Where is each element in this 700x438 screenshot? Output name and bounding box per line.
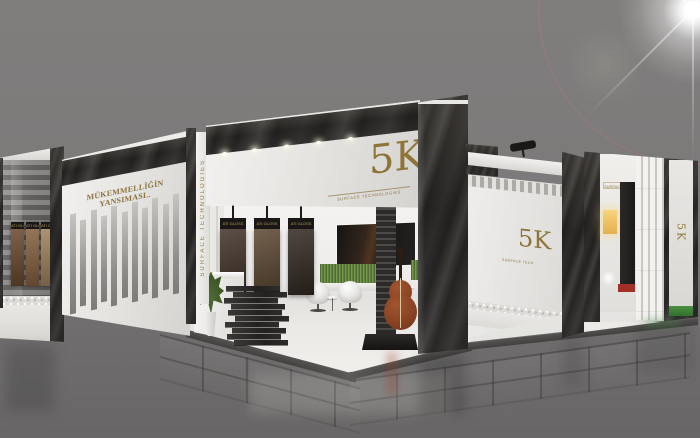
stack-slab (227, 334, 281, 339)
stack-slab (235, 316, 289, 321)
rug-reflection (645, 318, 680, 328)
wall-slat (111, 205, 117, 306)
cello (378, 250, 424, 350)
ceiling-light (284, 144, 289, 148)
stack-slab (226, 286, 280, 291)
marble-pilaster (50, 146, 64, 342)
panel-rod (232, 204, 234, 218)
case-card-label: ATI GLOSS (11, 222, 24, 229)
stack-slab (231, 304, 285, 309)
stack-slab (233, 292, 287, 297)
wall-slat (80, 219, 86, 306)
pendant-lamp (603, 210, 617, 234)
marble-column (584, 150, 600, 322)
corner-marble-column (186, 128, 196, 324)
marble-column (562, 148, 584, 338)
exhibition-stand-render: ATI GLOSSATI GLOSSATI GLOSS 5K ATI GLOSS… (0, 0, 700, 438)
lens-flare-burst (598, 0, 700, 105)
tower-highlight (418, 92, 425, 354)
wall-slat (173, 193, 179, 294)
wall-slat-group (70, 193, 182, 317)
dark-cabinet (620, 182, 635, 284)
logo-tagline: SURFACE TECHNOLOGIES (502, 258, 534, 266)
wall-slat (101, 215, 107, 302)
case-frame (0, 158, 3, 308)
stack-slab (234, 340, 288, 345)
display-window: 5K (669, 160, 693, 306)
track-light (510, 140, 537, 152)
window-logo-5k: 5K (675, 223, 688, 242)
ceiling-light (222, 152, 227, 156)
logo-5k: 5K (502, 226, 534, 230)
display-window-frame: 5K (664, 154, 698, 324)
wall-slat (70, 213, 76, 314)
wing-skew-layer: MÜKEMMELLİĞİN YANSIMASI.. (62, 101, 190, 338)
red-bench (618, 284, 635, 292)
marble-slab-stack (224, 286, 292, 352)
panel-rod (266, 204, 268, 218)
stack-slab (225, 322, 279, 327)
ceiling-light (348, 137, 353, 141)
panel-label: ATI GLOSS (220, 218, 246, 229)
vertical-tagline: SURFACE TECHNOLOGIES (200, 159, 206, 277)
green-rug (669, 306, 693, 316)
plant-pot (205, 312, 217, 336)
crystal-strip (2, 296, 52, 305)
stack-slab (224, 298, 278, 303)
left-display-case: ATI GLOSSATI GLOSSATI GLOSS (0, 146, 64, 342)
marble-tower-column (418, 92, 468, 354)
right-end-section: SURFACE TECHNOLOGIES 5K (584, 146, 698, 332)
main-logo: 5K SURFACE TECHNOLOGIES (324, 138, 414, 209)
floor-reflection (636, 324, 692, 372)
slat-wall (636, 148, 664, 320)
ceiling-light (316, 141, 321, 145)
wall-slat (142, 207, 148, 294)
ceiling-light (252, 148, 257, 152)
tile-wall-logo: 5K SURFACE TECHNOLOGIES (502, 226, 534, 280)
lounge-chair (601, 270, 616, 286)
wall-slat (122, 211, 128, 298)
case-card: ATI GLOSS (26, 222, 39, 286)
stack-slab (232, 328, 286, 333)
wall-slat (163, 203, 169, 290)
case-card: ATI GLOSS (11, 222, 24, 286)
wall-slat (132, 201, 138, 302)
panel-label: ATI GLOSS (288, 218, 314, 229)
wall-slat (91, 209, 97, 310)
roof-edge (418, 100, 468, 104)
left-wing-wall: MÜKEMMELLİĞİN YANSIMASI.. (62, 126, 190, 338)
roof-edge (584, 146, 600, 150)
case-card-label: ATI GLOSS (26, 222, 39, 229)
cello-reflection (386, 352, 398, 394)
floor-reflection (562, 338, 584, 386)
floor-reflection (420, 354, 466, 414)
panel-label: ATI GLOSS (254, 218, 280, 229)
center-header: 5K SURFACE TECHNOLOGIES (206, 99, 420, 211)
floor-reflection (6, 346, 54, 412)
stack-slab (228, 310, 282, 315)
tile-display-wall: 5K SURFACE TECHNOLOGIES (468, 162, 566, 338)
wall-slat (152, 197, 158, 298)
cello-strings (400, 278, 401, 328)
right-end-interior: SURFACE TECHNOLOGIES (600, 154, 636, 312)
